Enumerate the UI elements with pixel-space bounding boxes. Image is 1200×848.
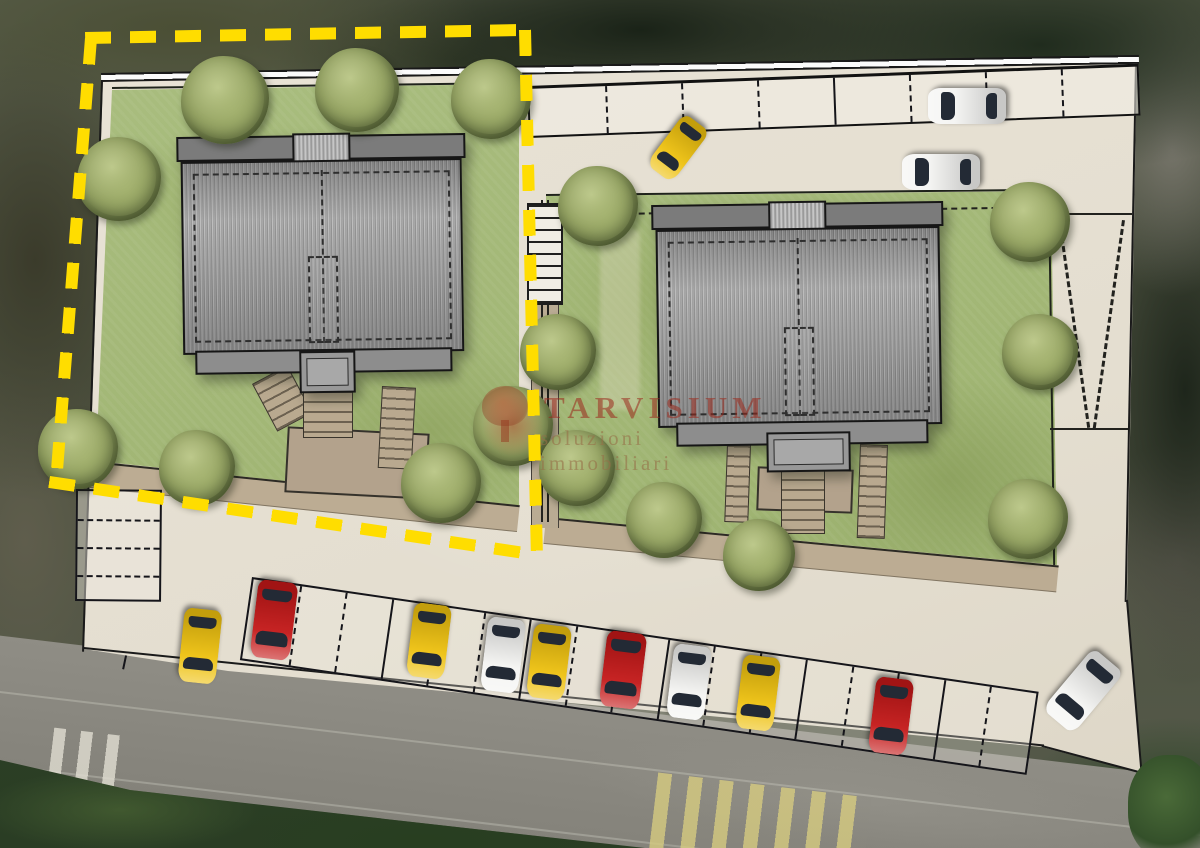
roof-stair-channel xyxy=(307,256,338,343)
building-ridge-gap xyxy=(292,133,350,163)
parking-slot-divider xyxy=(840,667,854,746)
mowed-strip xyxy=(600,230,640,410)
parking-slot-divider xyxy=(656,640,670,719)
parking-slot-divider xyxy=(77,547,159,550)
parking-slot-divider xyxy=(681,83,685,130)
parking-slot-divider xyxy=(288,586,302,665)
vegetation-southeast xyxy=(1128,755,1200,848)
roof-stair-channel xyxy=(784,327,815,417)
crosswalk-east xyxy=(648,772,872,848)
parking-slot-divider xyxy=(748,653,762,732)
building-right-duplex xyxy=(651,201,947,475)
building-left-duplex xyxy=(176,133,469,395)
parking-slot-divider xyxy=(380,599,394,678)
parking-slot-divider xyxy=(794,660,808,739)
parking-slot-divider xyxy=(833,78,837,125)
ramp-bottom-line xyxy=(1050,428,1128,430)
parking-slot-divider xyxy=(78,519,160,522)
parking-slot-divider xyxy=(334,593,348,672)
parking-slot-divider xyxy=(909,75,913,122)
parking-slot-divider xyxy=(610,633,624,712)
parking-slot-divider xyxy=(985,72,989,119)
building-entry-porch xyxy=(766,431,851,472)
parking-slot-divider xyxy=(978,687,992,766)
building-roof xyxy=(181,158,465,355)
parking-slot-divider xyxy=(472,613,486,692)
parking-slot-divider xyxy=(757,80,761,127)
parking-slot-divider xyxy=(605,86,609,133)
parking-slot-divider xyxy=(886,673,900,752)
building-roof xyxy=(655,226,942,428)
garden-steps xyxy=(378,386,416,470)
parking-slot-divider xyxy=(426,606,440,685)
parking-slot-divider xyxy=(1061,69,1065,116)
parking-slot-divider xyxy=(932,680,946,759)
garden-steps xyxy=(303,390,353,438)
parking-slot-divider xyxy=(77,575,159,578)
building-entry-porch xyxy=(299,351,356,394)
ramp-top-line xyxy=(1050,213,1132,215)
building-ridge-gap xyxy=(768,201,826,231)
parking-column-west xyxy=(75,489,162,602)
site-plan-image: TARVISIUM soluzioni immobiliari xyxy=(0,0,1200,848)
parking-slot-divider xyxy=(702,646,716,725)
parking-slot-divider xyxy=(518,620,532,699)
parking-slot-divider xyxy=(564,626,578,705)
